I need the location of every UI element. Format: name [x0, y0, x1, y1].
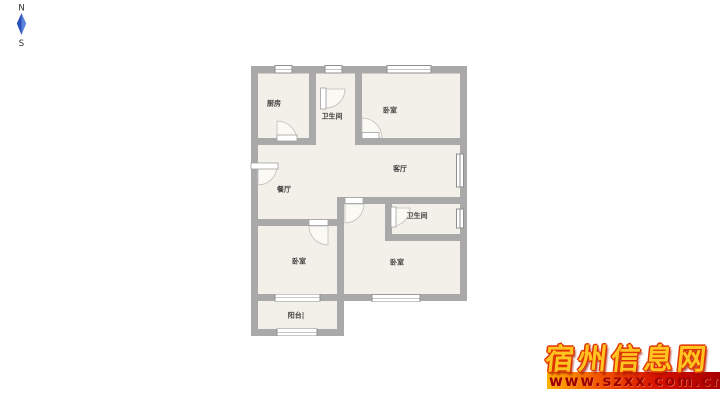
room-label-bathroom-right: 卫生间 [407, 211, 428, 220]
floor-plan: 厨房 卫生间 卧室 餐厅 客厅 卫生间 卧室 卧室 阳台| [251, 66, 467, 337]
compass-north-label: N [18, 4, 24, 14]
room-label-dining: 餐厅 [276, 185, 291, 194]
window-kitchen-top [275, 66, 292, 74]
room-label-living: 客厅 [392, 164, 407, 173]
room-label-bedroom-top: 卧室 [383, 106, 397, 115]
wall-balcony-right [337, 301, 344, 336]
wall-bedrooms-divider [337, 197, 344, 301]
room-label-kitchen: 厨房 [267, 99, 281, 108]
wall-kitchen-bath-divider [309, 73, 316, 145]
wall-bedroom-left-top [251, 219, 344, 226]
window-bedroom-right-bottom [372, 295, 420, 302]
wall-bath-bedroom-divider [355, 73, 362, 145]
screenshot-canvas: N S [0, 0, 720, 405]
room-label-bedroom-right: 卧室 [390, 258, 404, 267]
wall-bedroom-top-bottom [355, 138, 467, 145]
wall-bathroom-right-bottom [385, 234, 467, 241]
compass-south-label: S [19, 39, 24, 49]
window-bathroom-right [457, 209, 464, 228]
window-bathroom-top [325, 66, 342, 74]
compass-needle-icon [17, 13, 26, 35]
compass: N S [17, 4, 26, 50]
window-bedroom-top [387, 66, 431, 74]
watermark-site-name: 宿州信息网 [543, 342, 720, 376]
window-balcony-bottom [277, 329, 317, 336]
room-label-bathroom-top: 卫生间 [322, 112, 343, 121]
window-bedroom-left-bottom [275, 294, 320, 301]
room-label-balcony: 阳台| [288, 311, 305, 321]
room-label-bedroom-left: 卧室 [292, 257, 306, 266]
window-living-right [457, 154, 464, 187]
